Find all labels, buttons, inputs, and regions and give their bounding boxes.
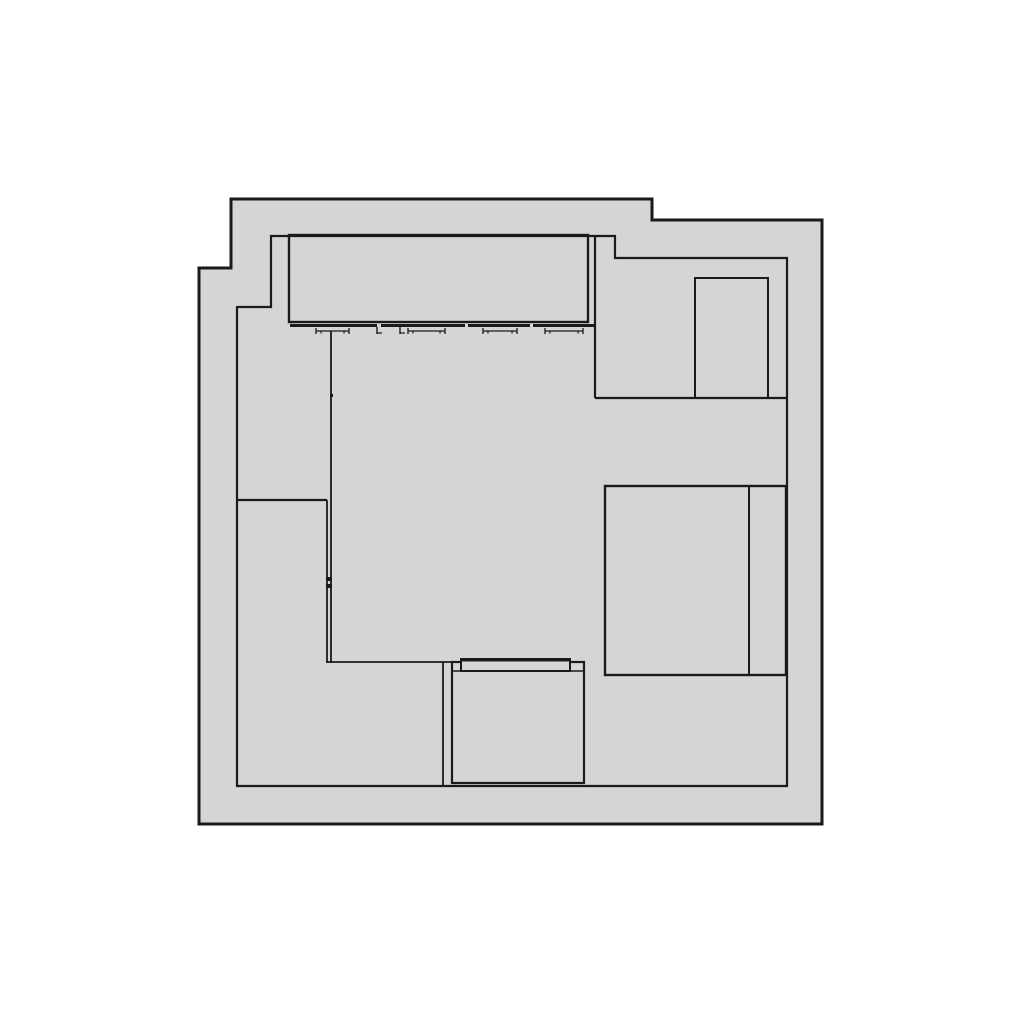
wall-joint-tick	[326, 584, 332, 588]
wall-stub-tick	[330, 394, 333, 397]
floorplan-page	[0, 0, 1024, 1024]
outer-wall-outline	[199, 199, 822, 824]
wall-joint-tick	[326, 577, 332, 581]
floorplan-drawing	[0, 0, 1024, 1024]
